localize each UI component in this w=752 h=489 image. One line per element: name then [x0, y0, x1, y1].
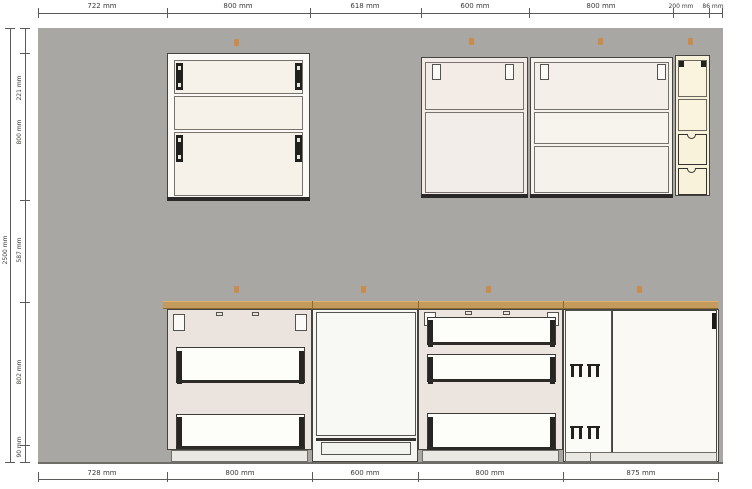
base-cabinet-1-drawer-1[interactable] — [176, 347, 305, 382]
dishwasher-door[interactable] — [316, 312, 416, 436]
bottom-dim-label: 600 mm — [335, 469, 395, 477]
bottom-dim-tick — [38, 472, 39, 482]
drawer-runner-rail — [427, 342, 556, 345]
wall-cabinet-2-shadow — [421, 194, 528, 198]
overall-height-label: 2500 mm — [2, 228, 10, 272]
item-number-marker[interactable] — [598, 38, 603, 45]
base-cabinet-4-plinth — [565, 452, 717, 462]
hinge-mark-icon — [712, 313, 716, 329]
bottom-dim-label: 875 mm — [611, 469, 671, 477]
top-dim-tick — [167, 8, 168, 18]
shelf-bracket-icon — [579, 366, 582, 377]
hinge-icon — [295, 63, 302, 90]
base-cabinet-3-plinth — [422, 450, 559, 462]
shelf-bracket-icon — [571, 428, 574, 439]
item-number-marker[interactable] — [637, 286, 642, 293]
item-number-marker[interactable] — [688, 38, 693, 45]
rail-mark-icon — [252, 312, 259, 316]
wall-cabinet-1-bottom-flap[interactable] — [174, 132, 303, 196]
wall-cabinet-2-door[interactable] — [425, 112, 524, 193]
hinge-tab-icon — [657, 64, 666, 80]
top-dim-tick — [38, 8, 39, 18]
shelf-bracket-icon — [571, 366, 574, 377]
shelf-bracket-icon — [596, 366, 599, 377]
top-dim-tick — [310, 8, 311, 18]
bottom-dim-label: 800 mm — [460, 469, 520, 477]
wall-cabinet-1-shadow — [167, 197, 310, 201]
base-cabinet-4[interactable] — [563, 309, 719, 462]
drawer-runner-rail — [427, 379, 556, 382]
dishwasher-kick-panel — [321, 442, 411, 455]
mounting-clip-icon — [173, 314, 185, 331]
rail-mark-icon — [465, 311, 472, 315]
bottom-dim-tick — [563, 472, 564, 482]
overall-height-line — [10, 28, 11, 462]
hinge-icon — [176, 135, 183, 162]
hinge-tab-icon — [432, 64, 441, 80]
drawer-runner-icon — [428, 417, 433, 449]
drawer-runner-icon — [299, 417, 304, 449]
top-dim-line — [38, 13, 723, 14]
base-cabinet-3[interactable] — [418, 309, 563, 450]
top-dim-label: 618 mm — [335, 2, 395, 10]
left-dim-label: 800 mm — [16, 110, 24, 154]
elevation-drawing: 722 mm 800 mm 618 mm 600 mm 800 mm 200 m… — [0, 0, 752, 489]
drawer-runner-icon — [177, 417, 182, 449]
left-dim-tick — [20, 28, 30, 29]
hinge-block-icon — [701, 61, 706, 67]
left-dim-tick — [20, 200, 30, 201]
base-cabinet-1-drawer-2[interactable] — [176, 414, 305, 449]
wall-cabinet-4-shelf-2[interactable] — [678, 99, 707, 131]
top-dim-tick — [529, 8, 530, 18]
bottom-dim-tick — [718, 472, 719, 482]
wall-cabinet-1[interactable] — [167, 53, 310, 198]
rail-mark-icon — [216, 312, 223, 316]
base-cabinet-4-plinth-seam — [590, 452, 591, 462]
drawer-runner-rail — [176, 380, 305, 383]
drawer-runner-rail — [176, 446, 305, 449]
bottom-dim-label: 728 mm — [72, 469, 132, 477]
countertop-seam — [563, 301, 564, 309]
overall-height-tick — [5, 462, 15, 463]
bottom-dim-tick — [418, 472, 419, 482]
left-dim-label: 802 mm — [16, 350, 24, 394]
bottom-dim-line — [38, 479, 719, 480]
item-number-marker[interactable] — [361, 286, 366, 293]
overall-height-tick — [5, 28, 15, 29]
countertop-seam — [312, 301, 313, 309]
hinge-block-icon — [679, 61, 684, 67]
floor-line — [38, 462, 723, 464]
wall-cabinet-3-middle-front[interactable] — [534, 112, 669, 144]
hinge-icon — [295, 135, 302, 162]
hinge-tab-icon — [505, 64, 514, 80]
rail-mark-icon — [503, 311, 510, 315]
top-dim-label: 800 mm — [208, 2, 268, 10]
top-dim-label: 200 mm — [664, 3, 698, 11]
top-dim-label: 800 mm — [571, 2, 631, 10]
top-dim-tick — [421, 8, 422, 18]
wall-cabinet-3-bottom-front[interactable] — [534, 146, 669, 193]
top-dim-label: 722 mm — [72, 2, 132, 10]
left-dim-line — [25, 28, 26, 462]
drawer-runner-icon — [550, 417, 555, 449]
shelf-bracket-icon — [596, 428, 599, 439]
top-dim-label: 600 mm — [445, 2, 505, 10]
left-dim-tick — [20, 53, 30, 54]
shelf-bracket-icon — [588, 428, 591, 439]
item-number-marker[interactable] — [234, 286, 239, 293]
wall-cabinet-1-middle-panel[interactable] — [174, 96, 303, 130]
bottom-dim-tick — [167, 472, 168, 482]
base-cabinet-4-door[interactable] — [612, 310, 717, 453]
base-cabinet-3-drawer-1[interactable] — [427, 317, 556, 345]
shelf-bracket-icon — [579, 428, 582, 439]
item-number-marker[interactable] — [234, 39, 239, 46]
item-number-marker[interactable] — [469, 38, 474, 45]
top-dim-label: 86 mm — [699, 3, 727, 11]
dishwasher[interactable] — [312, 309, 418, 462]
left-dim-label: 587 mm — [16, 228, 24, 272]
wall-cabinet-2[interactable] — [421, 57, 528, 195]
wall-cabinet-3-top-front[interactable] — [534, 62, 669, 110]
countertop[interactable] — [163, 301, 718, 309]
wall-cabinet-3-shadow — [530, 194, 673, 198]
mounting-clip-icon — [295, 314, 307, 331]
dishwasher-base-line — [316, 438, 416, 441]
item-number-marker[interactable] — [486, 286, 491, 293]
shelf-bracket-icon — [588, 366, 591, 377]
base-cabinet-3-drawer-2[interactable] — [427, 354, 556, 382]
bottom-dim-tick — [312, 472, 313, 482]
wall-cabinet-1-top-flap[interactable] — [174, 60, 303, 94]
wall-cabinet-4[interactable] — [675, 55, 710, 196]
left-dim-label: 221 mm — [16, 66, 24, 110]
base-cabinet-3-drawer-3[interactable] — [427, 413, 556, 450]
countertop-seam — [418, 301, 419, 309]
hinge-icon — [176, 63, 183, 90]
bottom-dim-label: 800 mm — [210, 469, 270, 477]
wall-cabinet-3[interactable] — [530, 57, 673, 195]
hinge-tab-icon — [540, 64, 549, 80]
base-cabinet-1-plinth — [171, 450, 308, 462]
left-dim-tick — [20, 302, 30, 303]
left-dim-label: 90 mm — [16, 425, 24, 469]
base-cabinet-1[interactable] — [167, 309, 312, 450]
